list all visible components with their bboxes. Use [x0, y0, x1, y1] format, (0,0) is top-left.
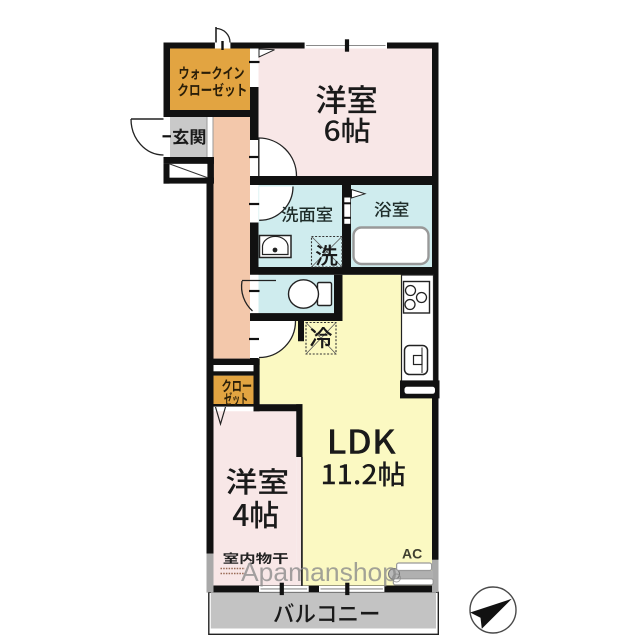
svg-text:Apamanshop: Apamanshop	[241, 557, 397, 587]
svg-text:AC: AC	[402, 546, 422, 562]
